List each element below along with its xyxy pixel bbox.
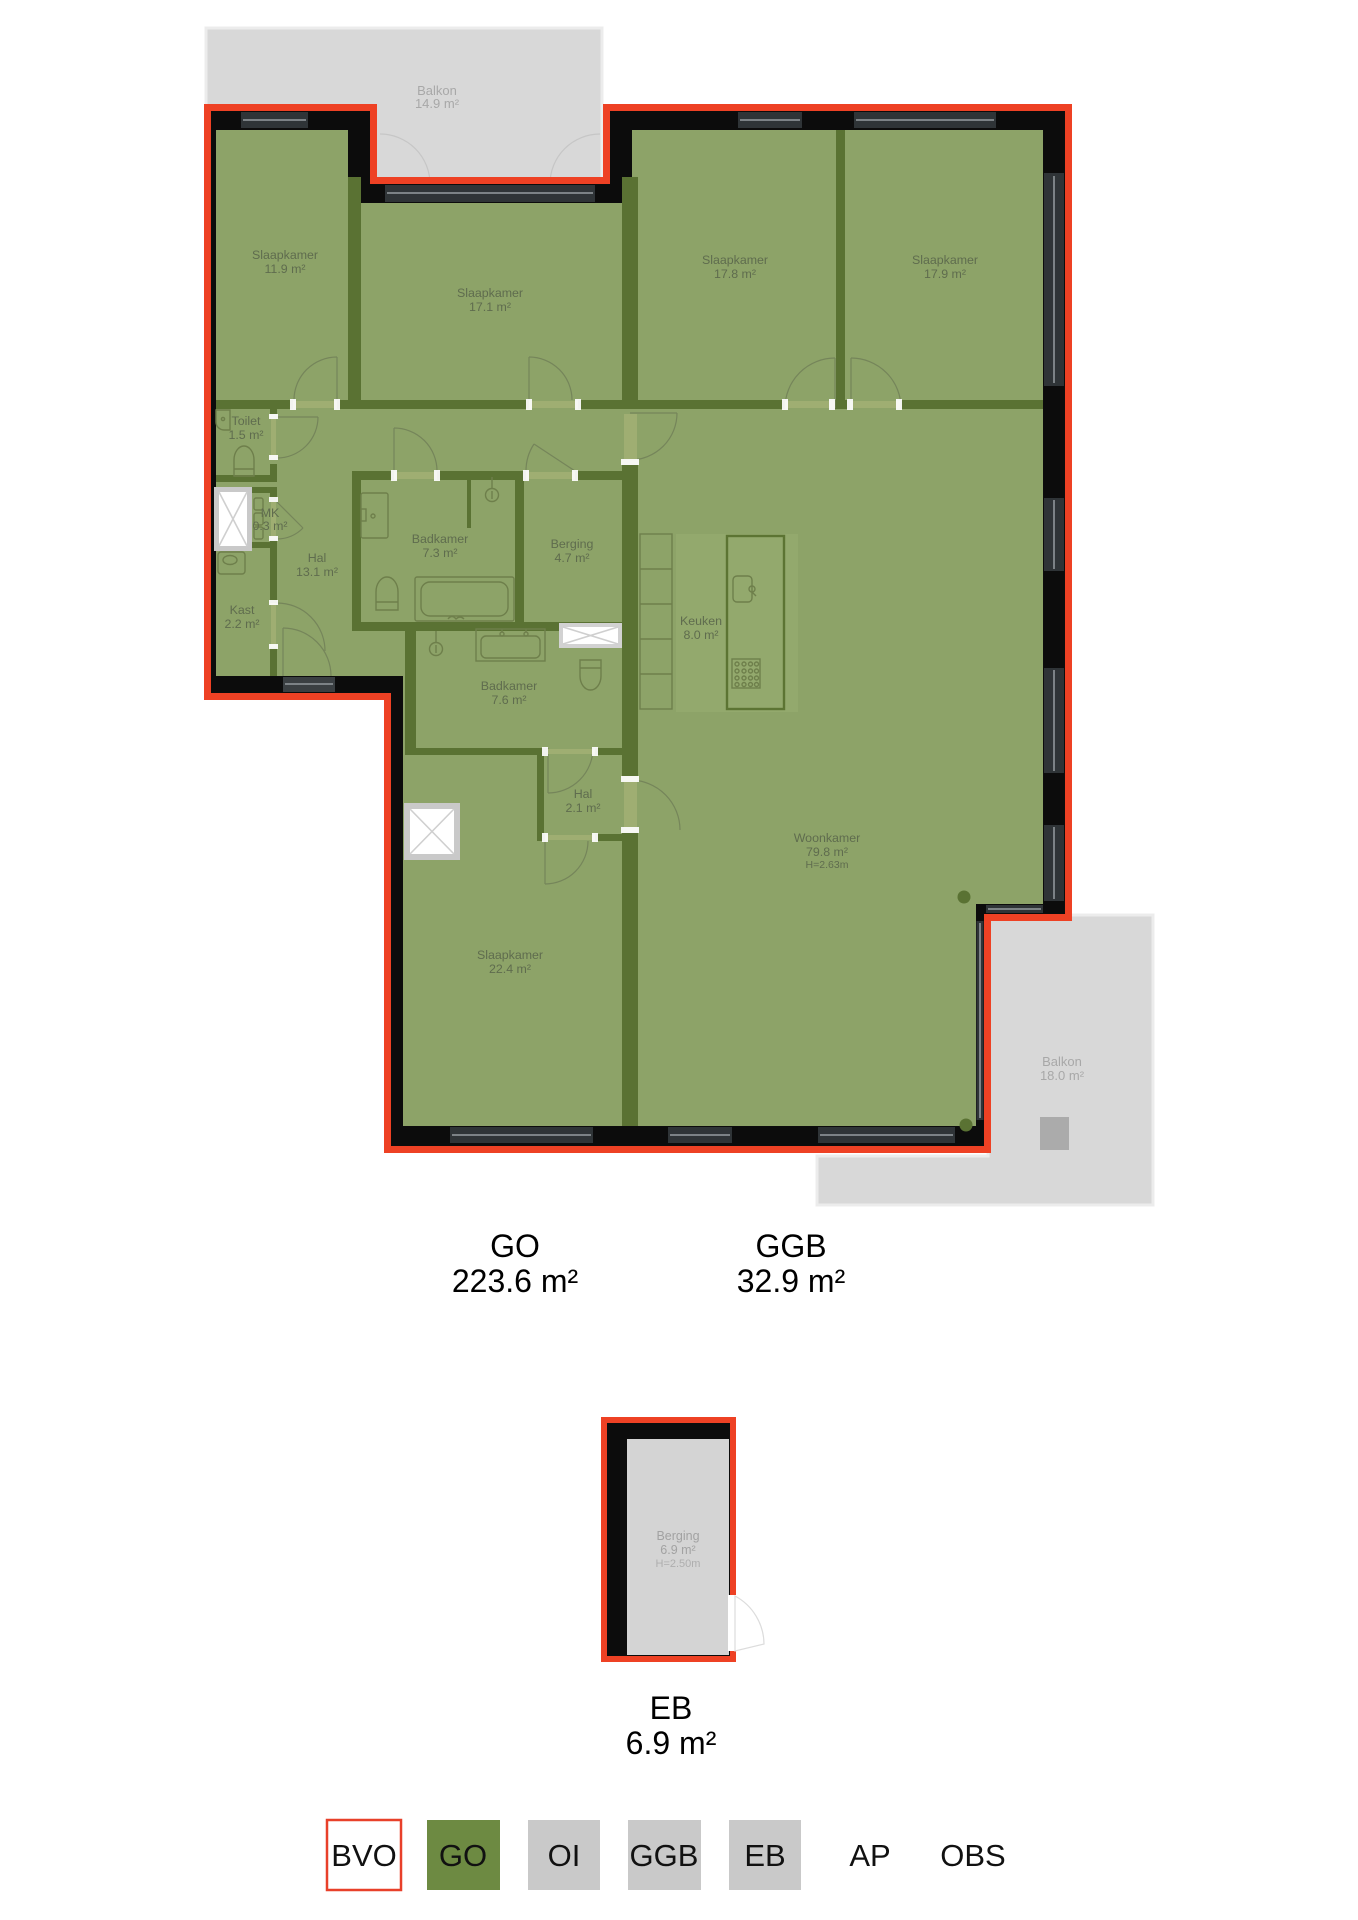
svg-text:18.0 m²: 18.0 m² [1040,1068,1085,1083]
svg-text:Hal: Hal [308,551,327,565]
svg-text:Hal: Hal [574,787,593,801]
svg-text:Kast: Kast [230,603,255,617]
svg-text:17.9 m²: 17.9 m² [924,267,966,281]
svg-text:BVO: BVO [331,1838,396,1873]
svg-text:7.3 m²: 7.3 m² [422,546,457,560]
svg-text:79.8 m²: 79.8 m² [806,845,848,859]
svg-text:Woonkamer: Woonkamer [794,831,861,845]
svg-text:H=2.63m: H=2.63m [806,859,849,871]
svg-text:MK: MK [261,506,280,520]
svg-text:4.7 m²: 4.7 m² [554,551,589,565]
svg-text:Slaapkamer: Slaapkamer [912,253,978,267]
svg-text:GGB: GGB [755,1228,826,1264]
svg-text:Slaapkamer: Slaapkamer [252,248,318,262]
svg-text:13.1 m²: 13.1 m² [296,565,338,579]
svg-text:223.6 m²: 223.6 m² [452,1263,579,1299]
svg-text:AP: AP [849,1838,890,1873]
svg-text:6.9 m²: 6.9 m² [660,1543,695,1557]
svg-text:17.1 m²: 17.1 m² [469,300,511,314]
svg-text:EB: EB [650,1690,693,1726]
svg-text:GO: GO [490,1228,540,1264]
svg-text:6.9 m²: 6.9 m² [626,1725,717,1761]
svg-text:1.5 m²: 1.5 m² [228,428,263,442]
svg-text:GGB: GGB [630,1838,699,1873]
svg-text:2.1 m²: 2.1 m² [565,801,600,815]
svg-text:Slaapkamer: Slaapkamer [702,253,768,267]
svg-text:H=2.50m: H=2.50m [656,1558,701,1570]
svg-text:14.9 m²: 14.9 m² [415,96,460,111]
svg-text:Toilet: Toilet [232,414,261,428]
svg-text:22.4 m²: 22.4 m² [489,962,531,976]
svg-text:11.9 m²: 11.9 m² [264,262,305,276]
svg-text:Berging: Berging [656,1529,699,1543]
svg-text:Keuken: Keuken [680,614,722,628]
svg-text:Berging: Berging [551,537,594,551]
svg-text:EB: EB [744,1838,785,1873]
svg-text:OI: OI [548,1838,581,1873]
svg-text:GO: GO [439,1838,487,1873]
svg-text:Badkamer: Badkamer [481,679,537,693]
svg-text:8.0 m²: 8.0 m² [683,628,718,642]
svg-text:Slaapkamer: Slaapkamer [457,286,523,300]
svg-text:17.8 m²: 17.8 m² [714,267,756,281]
svg-text:Slaapkamer: Slaapkamer [477,948,543,962]
svg-text:32.9 m²: 32.9 m² [737,1263,846,1299]
svg-text:0.3 m²: 0.3 m² [252,519,287,533]
svg-text:2.2 m²: 2.2 m² [224,617,259,631]
svg-text:OBS: OBS [940,1838,1005,1873]
svg-text:Balkon: Balkon [1042,1054,1082,1069]
svg-text:Badkamer: Badkamer [412,532,468,546]
svg-text:7.6 m²: 7.6 m² [491,693,526,707]
